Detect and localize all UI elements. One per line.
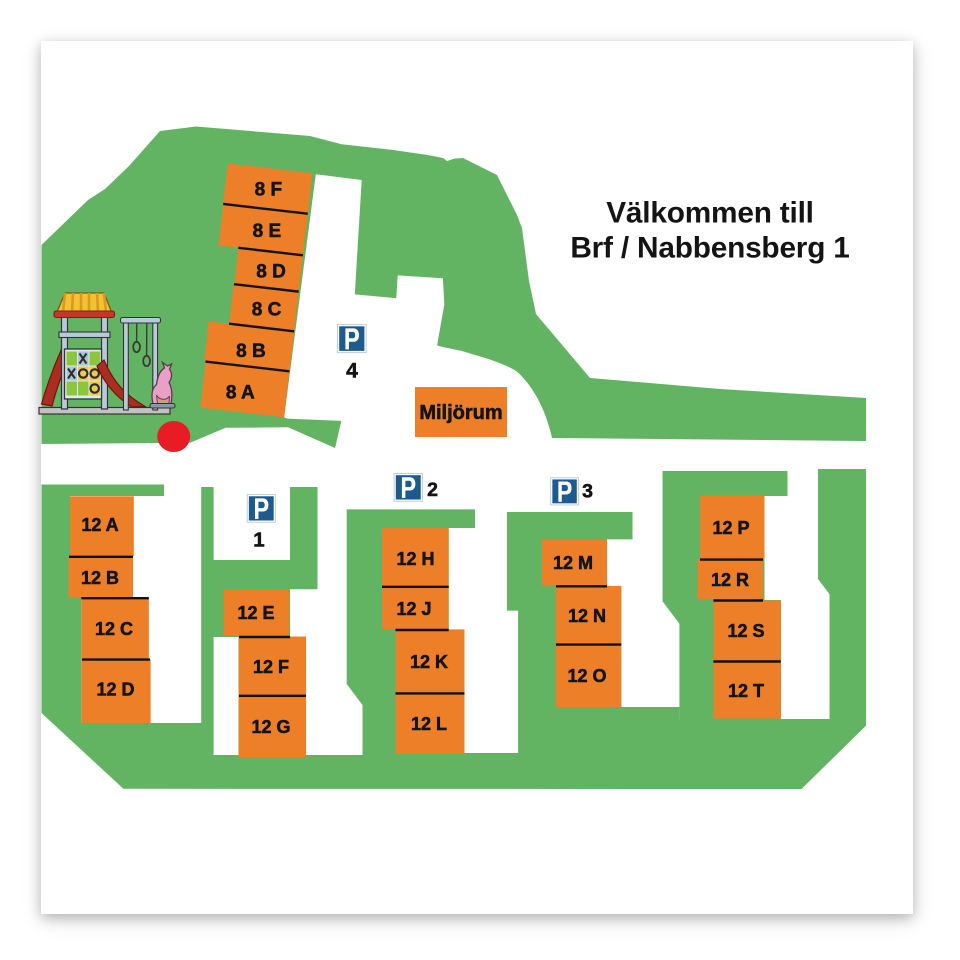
svg-text:12 G: 12 G <box>251 717 290 737</box>
svg-text:12 E: 12 E <box>237 603 274 623</box>
svg-text:12 M: 12 M <box>553 553 593 573</box>
svg-text:12 T: 12 T <box>728 681 764 701</box>
svg-text:12 N: 12 N <box>568 606 606 626</box>
svg-text:8 E: 8 E <box>253 221 282 242</box>
svg-text:Välkommen till: Välkommen till <box>606 197 814 230</box>
svg-text:12 A: 12 A <box>81 515 118 535</box>
svg-text:12 H: 12 H <box>396 549 434 569</box>
svg-text:8 C: 8 C <box>252 299 282 320</box>
svg-text:8 F: 8 F <box>255 179 282 200</box>
svg-text:8 D: 8 D <box>256 262 286 283</box>
svg-text:12 P: 12 P <box>712 518 749 538</box>
svg-text:4: 4 <box>346 360 358 383</box>
svg-text:12 O: 12 O <box>567 666 606 686</box>
svg-text:8 B: 8 B <box>236 341 266 362</box>
svg-text:8 A: 8 A <box>226 382 255 403</box>
svg-text:12 C: 12 C <box>95 619 133 639</box>
svg-text:12 L: 12 L <box>411 714 447 734</box>
svg-text:12 R: 12 R <box>711 570 749 590</box>
svg-text:12 F: 12 F <box>253 657 289 677</box>
svg-text:12 J: 12 J <box>396 599 431 619</box>
svg-text:12 K: 12 K <box>410 652 448 672</box>
svg-text:1: 1 <box>253 529 264 552</box>
svg-text:Brf / Nabbensberg 1: Brf / Nabbensberg 1 <box>570 232 849 265</box>
svg-text:Miljörum: Miljörum <box>419 402 502 424</box>
svg-text:12 S: 12 S <box>727 621 764 641</box>
svg-text:12 D: 12 D <box>96 680 134 700</box>
svg-text:3: 3 <box>582 481 593 503</box>
svg-text:12 B: 12 B <box>81 568 119 588</box>
svg-text:2: 2 <box>427 479 438 501</box>
